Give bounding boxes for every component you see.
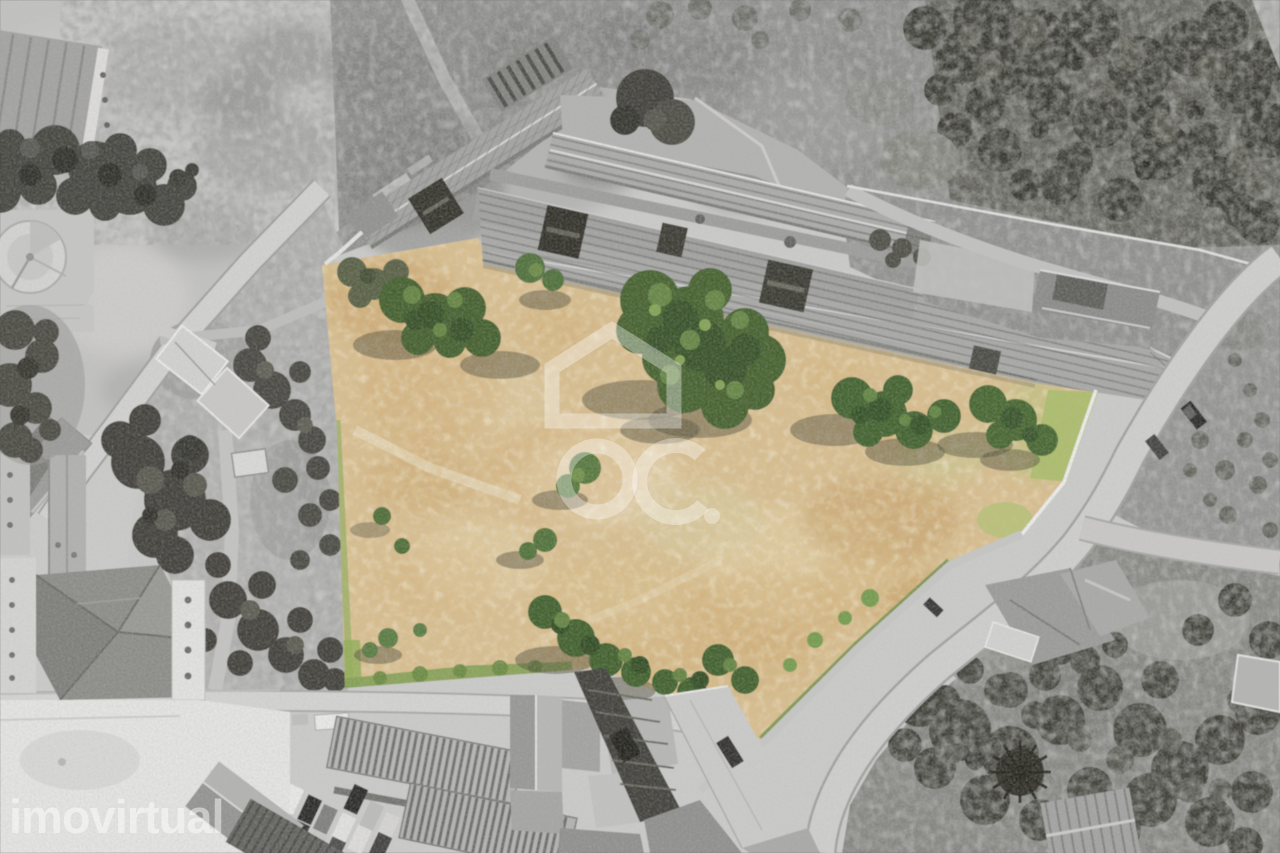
svg-text:imovirtual: imovirtual: [9, 790, 224, 843]
